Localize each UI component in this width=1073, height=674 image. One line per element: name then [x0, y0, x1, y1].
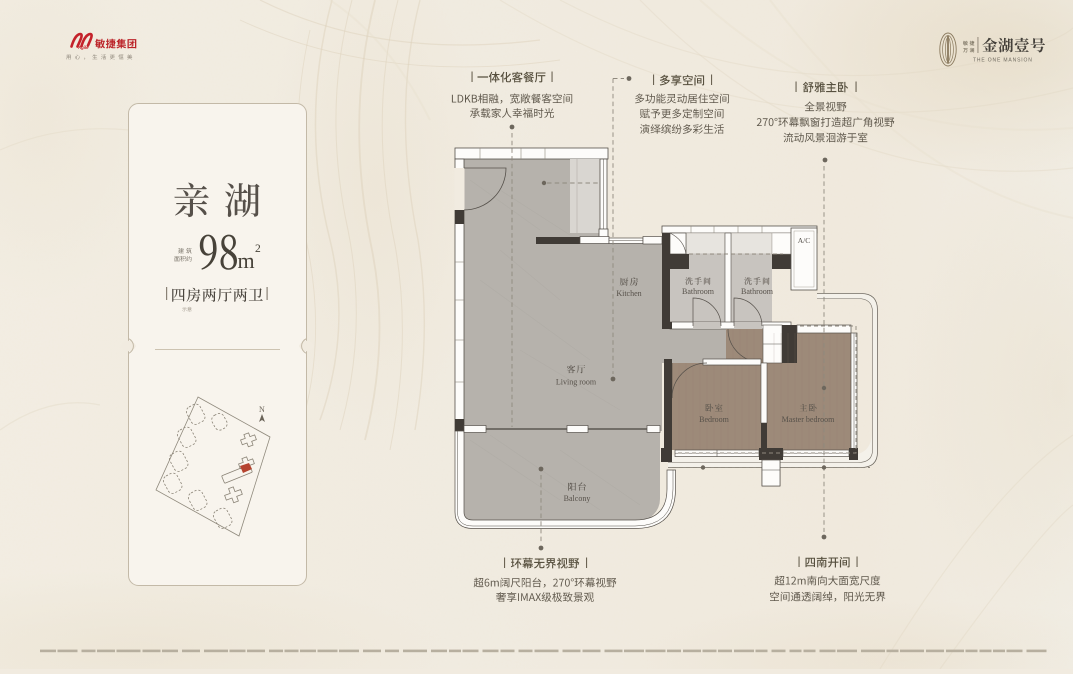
svg-text:N: N — [259, 405, 265, 414]
svg-text:Master bedroom: Master bedroom — [782, 415, 835, 424]
svg-text:2: 2 — [255, 243, 261, 255]
svg-text:THE ONE MANSION: THE ONE MANSION — [973, 58, 1033, 64]
svg-text:Living room: Living room — [556, 378, 597, 387]
svg-text:Balcony: Balcony — [564, 494, 591, 503]
svg-text:Bathroom: Bathroom — [741, 287, 774, 296]
svg-text:m: m — [238, 248, 255, 273]
svg-text:Bathroom: Bathroom — [682, 287, 715, 296]
svg-text:Agile: Agile — [77, 45, 89, 50]
svg-text:Bedroom: Bedroom — [699, 415, 730, 424]
svg-text:Kitchen: Kitchen — [616, 289, 641, 298]
svg-text:A/C: A/C — [798, 236, 811, 245]
